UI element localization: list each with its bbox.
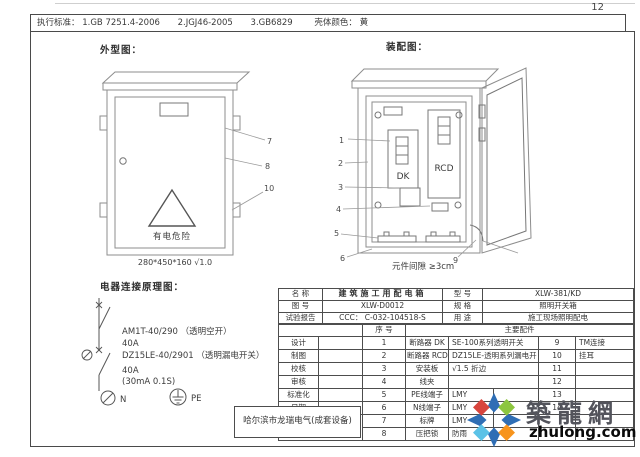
assembly-title: 装配图：: [386, 39, 428, 53]
terminal-rail-right: [426, 236, 460, 242]
breaker-rcd-label: RCD: [434, 164, 453, 174]
title-block-header: 名 称 建筑施工用配电箱 型 号 XLW-381/KD 图 号 XLW-D001…: [278, 288, 634, 325]
standards-label: 执行标准：: [37, 15, 80, 31]
schematic-line-4: 40A: [122, 366, 139, 376]
leader-line-8: [225, 158, 262, 166]
role-label: 校核: [279, 363, 319, 376]
company-name-box: 哈尔滨市龙瑞电气(成套设备): [234, 406, 361, 438]
standard-3: 3.GB6829: [251, 15, 293, 31]
outline-title: 外型图：: [100, 42, 142, 56]
door-latch-plate: [160, 103, 188, 116]
parts-header-row: 序 号 主要配件: [279, 324, 634, 337]
standards-bar: 执行标准： 1.GB 7251.4-2006 2.JGJ46-2005 3.GB…: [30, 14, 626, 32]
clearance-note: 元件间隙 ≥3cm: [392, 261, 454, 272]
panel-screw: [456, 112, 462, 118]
page-number: 12: [591, 2, 604, 13]
leader-line-7: [225, 128, 265, 140]
name-plate: [384, 107, 402, 115]
warning-text: 有电危险: [153, 231, 191, 242]
schematic-line-5: (30mA 0.1S): [122, 377, 175, 387]
spec-label: 规 格: [443, 301, 483, 313]
earth-label: PE: [191, 394, 202, 404]
leader-2: 2: [338, 159, 343, 168]
page-top-edge: [55, 3, 635, 4]
outline-dimensions: 280*450*160 √1.0: [138, 258, 212, 267]
panel-screw: [375, 202, 381, 208]
table-row: 审核 4 线夹 12: [279, 376, 634, 389]
schematic-line-1: AM1T-40/290 （透明空开）: [122, 326, 232, 337]
leader-line-10: [232, 192, 263, 210]
role-label: 审核: [279, 376, 319, 389]
logo-diamond-green: [498, 399, 515, 416]
leader-3: 3: [338, 183, 343, 192]
drawing-no-value: XLW-D0012: [323, 301, 443, 313]
panel-screw: [375, 112, 381, 118]
seq-header: 序 号: [363, 324, 406, 337]
table-row: 制图 2 断路器 RCD DZ15LE-透明系列漏电开 10 挂耳: [279, 350, 634, 363]
cabinet-body: [107, 90, 233, 255]
logo-diamond-red: [473, 399, 490, 416]
wiring-schematic: AM1T-40/290 （透明空开） 40A DZ15LE-40/2901 （透…: [60, 293, 290, 418]
company-name: 哈尔滨市龙瑞电气(成套设备): [243, 417, 352, 427]
cabinet-opening: [366, 96, 472, 247]
breaker-rcd-toggle: [438, 117, 450, 144]
name-value: 建筑施工用配电箱: [323, 289, 443, 301]
standard-2: 2.JGJ46-2005: [178, 15, 233, 31]
mount-tab-left-bottom: [100, 203, 107, 217]
schematic-line-3: DZ15LE-40/2901 （透明漏电开关）: [122, 350, 264, 361]
cabinet-cap-top: [352, 69, 498, 81]
leader-5: 5: [334, 229, 339, 238]
zhulong-logo: 築龍網 zhulong.com: [466, 392, 638, 454]
neutral-label: N: [120, 395, 126, 405]
shell-color-label: 壳体颜色：: [314, 15, 357, 31]
mount-tab-right-top: [233, 116, 240, 130]
role-label: 标准化: [279, 389, 319, 402]
breaker-dk-toggle: [396, 137, 408, 164]
table-row: 校核 3 安装板 √1.5 折边 11: [279, 363, 634, 376]
open-door-inner: [487, 78, 526, 245]
breaker-rcd: [428, 110, 460, 198]
open-door: [482, 68, 531, 253]
warning-triangle-icon: [149, 190, 195, 226]
logo-domain: zhulong.com: [529, 423, 636, 441]
door-lock-icon: [120, 158, 126, 164]
drawing-no-label: 图 号: [279, 301, 323, 313]
role-label: 设计: [279, 337, 319, 350]
breaker-dk-base: [400, 188, 420, 206]
logo-diamond-orange: [498, 424, 515, 441]
table-row: 设计 1 断路器 DK SE-100系列透明开关 9 TM连接: [279, 337, 634, 350]
model-label: 型 号: [443, 289, 483, 301]
parts-header: 主要配件: [406, 324, 634, 337]
name-label: 名 称: [279, 289, 323, 301]
panel-screw: [455, 202, 461, 208]
breaker-dk-label: DK: [397, 172, 411, 182]
leader-10: 10: [264, 184, 274, 193]
model-value: XLW-381/KD: [483, 289, 634, 301]
cable-gland: [432, 203, 448, 211]
logo-diamond-lightblue: [473, 424, 490, 441]
leader-7: 7: [267, 137, 272, 146]
leader-4: 4: [336, 205, 341, 214]
breaker-symbol-1: [99, 307, 110, 329]
standard-1: 1.GB 7251.4-2006: [82, 15, 160, 31]
breaker-symbol-2: [99, 353, 110, 375]
cabinet-cap-top: [103, 72, 249, 83]
leader-6: 6: [340, 254, 345, 263]
assembly-drawing: DK RCD 1 2 3 4 5 6 9: [330, 53, 540, 273]
mount-tab-left-top: [100, 116, 107, 130]
mount-tab-right-bottom: [233, 203, 240, 217]
shell-color-value: 黄: [360, 15, 369, 31]
drawing-sheet: 12 执行标准： 1.GB 7251.4-2006 2.JGJ46-2005 3…: [0, 0, 640, 457]
schematic-line-2: 40A: [122, 339, 139, 349]
outline-drawing: 有电危险 280*450*160 √1.0 7 8 10: [95, 58, 285, 273]
leader-1: 1: [339, 136, 344, 145]
zhulong-pinwheel-icon: [466, 392, 522, 448]
terminal-rail-left: [378, 236, 416, 242]
schematic-title: 电器连接原理图：: [100, 279, 184, 293]
cabinet-cap-front: [103, 83, 237, 90]
spec-value: 照明开关箱: [483, 301, 634, 313]
cabinet-cap-front: [352, 81, 486, 88]
role-label: 制图: [279, 350, 319, 363]
leader-8: 8: [265, 162, 270, 171]
